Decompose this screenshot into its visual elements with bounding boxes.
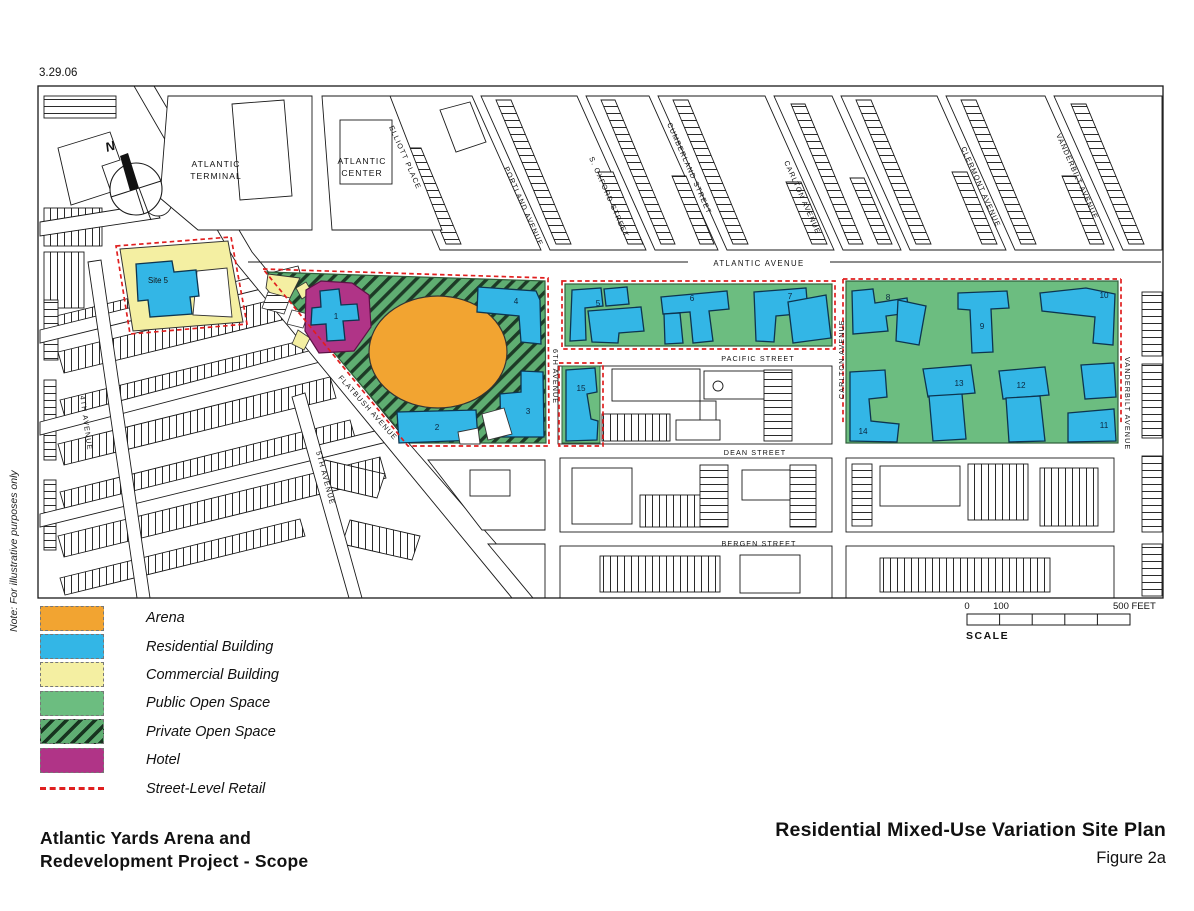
site-plan-page: 3.29.06 Note: For illustrative purposes … xyxy=(0,0,1194,911)
legend-label-public-open-space: Public Open Space xyxy=(146,695,270,711)
project-title: Atlantic Yards Arena and Redevelopment P… xyxy=(40,827,308,873)
building-15-number: 15 xyxy=(576,384,586,393)
scale-word: SCALE xyxy=(966,630,1009,642)
legend-label-commercial: Commercial Building xyxy=(146,667,279,683)
legend-swatch-private-open-space xyxy=(40,719,104,744)
legend-row-private-open-space: Private Open Space xyxy=(40,718,279,746)
legend-label-private-open-space: Private Open Space xyxy=(146,724,276,740)
building-8-number: 8 xyxy=(886,293,891,302)
building-9-number: 9 xyxy=(980,322,985,331)
atlantic-terminal-label: ATLANTIC xyxy=(192,159,241,169)
north-compass: N xyxy=(103,137,162,220)
legend-label-residential: Residential Building xyxy=(146,639,273,655)
building-13-number: 13 xyxy=(954,379,964,388)
site-5-block xyxy=(116,237,247,334)
legend-row-commercial: Commercial Building xyxy=(40,661,279,689)
building-6-number: 6 xyxy=(690,294,695,303)
building-2-number: 2 xyxy=(435,423,440,432)
figure-title-block: Residential Mixed-Use Variation Site Pla… xyxy=(775,819,1166,868)
legend-swatch-public-open-space xyxy=(40,691,104,716)
legend-row-residential: Residential Building xyxy=(40,632,279,660)
svg-text:TERMINAL: TERMINAL xyxy=(190,171,241,181)
scale-100: 100 xyxy=(993,601,1009,612)
carlton-avenue-label: CARLTON AVENUE xyxy=(837,319,846,399)
atlantic-center-label: ATLANTIC xyxy=(338,156,387,166)
block-5-6-7 xyxy=(562,281,835,349)
building-13 xyxy=(923,365,975,397)
building-10-number: 10 xyxy=(1099,291,1109,300)
legend-row-hotel: Hotel xyxy=(40,746,279,774)
legend-swatch-street-level-retail xyxy=(40,787,104,790)
building-14-number: 14 xyxy=(858,427,868,436)
scale-zero: 0 xyxy=(964,601,969,612)
legend-swatch-hotel xyxy=(40,748,104,773)
building-5-number: 5 xyxy=(596,299,601,308)
building-12-number: 12 xyxy=(1016,381,1026,390)
site-5-label: Site 5 xyxy=(148,276,169,285)
dean-street-label: DEAN STREET xyxy=(724,448,786,457)
atlantic-avenue-label: ATLANTIC AVENUE xyxy=(713,259,804,268)
building-11 xyxy=(1081,363,1116,399)
project-title-line1: Atlantic Yards Arena and xyxy=(40,827,308,850)
legend-swatch-commercial xyxy=(40,662,104,687)
legend-label-arena: Arena xyxy=(146,610,185,626)
legend-label-street-level-retail: Street-Level Retail xyxy=(146,781,265,797)
legend: Arena Residential Building Commercial Bu… xyxy=(40,604,279,803)
scale-500-feet: 500 FEET xyxy=(1113,601,1156,612)
block-8-14 xyxy=(843,279,1121,443)
legend-label-hotel: Hotel xyxy=(146,752,180,768)
sixth-avenue-label: 6TH AVENUE xyxy=(551,349,560,404)
building-7-number: 7 xyxy=(788,292,793,301)
building-3-number: 3 xyxy=(526,407,531,416)
figure-number: Figure 2a xyxy=(775,849,1166,868)
bergen-street-label: BERGEN STREET xyxy=(721,539,796,548)
building-11-number: 11 xyxy=(1100,421,1109,430)
building-1-number: 1 xyxy=(334,312,339,321)
illustrative-note: Note: For illustrative purposes only xyxy=(8,422,20,632)
legend-swatch-residential xyxy=(40,634,104,659)
legend-row-street-level-retail: Street-Level Retail xyxy=(40,774,279,802)
scale-bar: 0 100 500 FEET SCALE xyxy=(964,601,1156,642)
legend-row-public-open-space: Public Open Space xyxy=(40,689,279,717)
building-4-number: 4 xyxy=(514,297,519,306)
figure-title: Residential Mixed-Use Variation Site Pla… xyxy=(775,819,1166,842)
date-stamp: 3.29.06 xyxy=(39,67,77,79)
project-title-line2: Redevelopment Project - Scope xyxy=(40,850,308,873)
legend-swatch-arena xyxy=(40,606,104,631)
pacific-street-label: PACIFIC STREET xyxy=(721,354,795,363)
svg-text:CENTER: CENTER xyxy=(341,168,382,178)
legend-row-arena: Arena xyxy=(40,604,279,632)
building-15-parcel xyxy=(559,363,603,446)
vanderbilt-avenue-label: VANDERBILT AVENUE xyxy=(1123,357,1132,450)
